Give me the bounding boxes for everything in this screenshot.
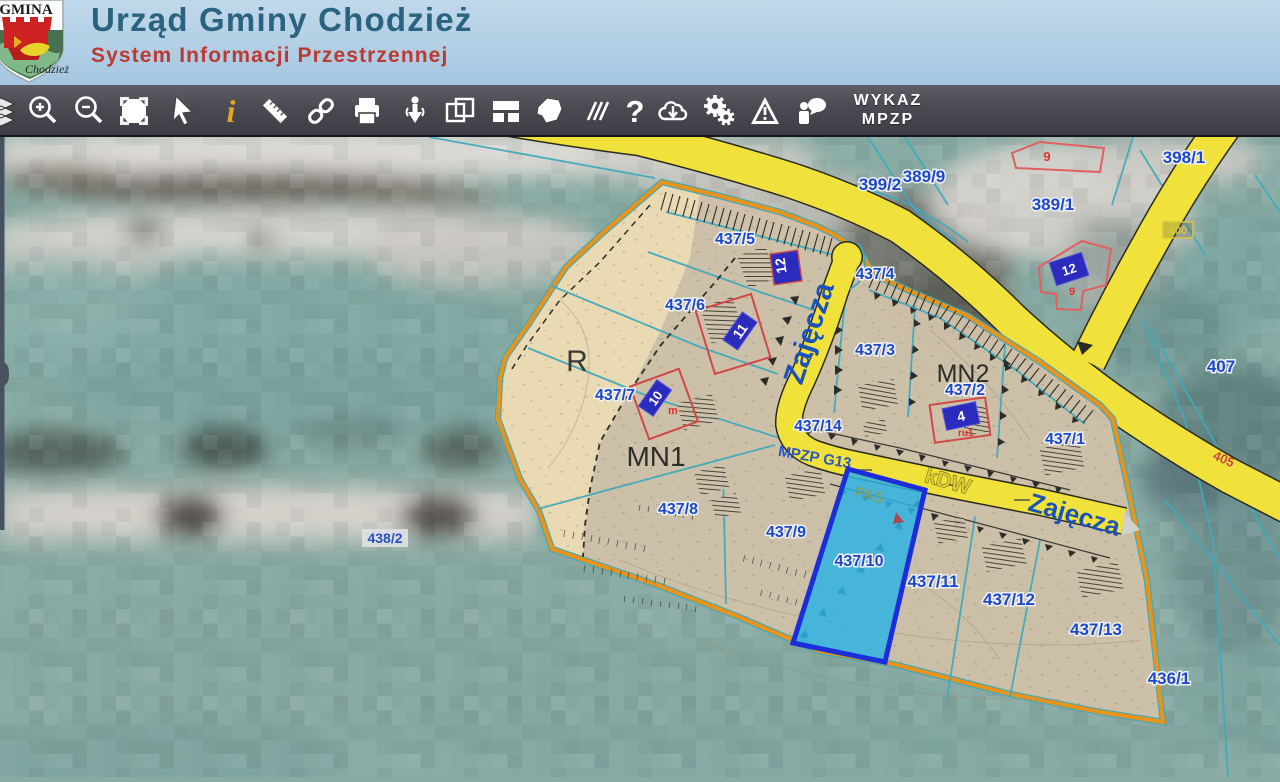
svg-text:437/7: 437/7 — [595, 387, 635, 404]
svg-text:R: R — [566, 345, 588, 378]
svg-text:437/14: 437/14 — [794, 418, 842, 435]
svg-text:i: i — [227, 94, 236, 128]
svg-text:GMINA: GMINA — [0, 2, 53, 18]
svg-text:437/8: 437/8 — [658, 501, 698, 518]
svg-text:436/1: 436/1 — [1148, 669, 1191, 688]
svg-text:437/10: 437/10 — [835, 553, 884, 570]
svg-text:389/9: 389/9 — [903, 167, 946, 186]
svg-text:12: 12 — [772, 257, 790, 275]
svg-text:m: m — [668, 405, 678, 417]
svg-text:437/1: 437/1 — [1045, 431, 1085, 448]
svg-text:ru1: ru1 — [958, 428, 974, 439]
svg-text:400: 400 — [1169, 225, 1187, 237]
svg-text:MN1: MN1 — [626, 441, 685, 472]
svg-text:437/5: 437/5 — [715, 231, 755, 248]
svg-text:399/2: 399/2 — [859, 175, 902, 194]
svg-text:437/2: 437/2 — [945, 382, 985, 399]
svg-text:Chodzież: Chodzież — [25, 62, 69, 76]
svg-text:437/4: 437/4 — [856, 266, 895, 283]
svg-text:407: 407 — [1207, 357, 1235, 376]
svg-text:437/11: 437/11 — [907, 572, 958, 591]
svg-text:389/1: 389/1 — [1032, 195, 1075, 214]
svg-text:437/6: 437/6 — [665, 297, 705, 314]
svg-text:?: ? — [626, 94, 645, 128]
svg-text:437/12: 437/12 — [983, 590, 1035, 609]
svg-text:437/3: 437/3 — [855, 342, 895, 359]
svg-text:9: 9 — [1069, 286, 1075, 298]
svg-text:437/13: 437/13 — [1070, 620, 1122, 639]
svg-text:9: 9 — [1043, 149, 1050, 164]
svg-text:398/1: 398/1 — [1163, 148, 1206, 167]
svg-text:438/2: 438/2 — [367, 530, 402, 546]
svg-text:437/9: 437/9 — [766, 524, 806, 541]
